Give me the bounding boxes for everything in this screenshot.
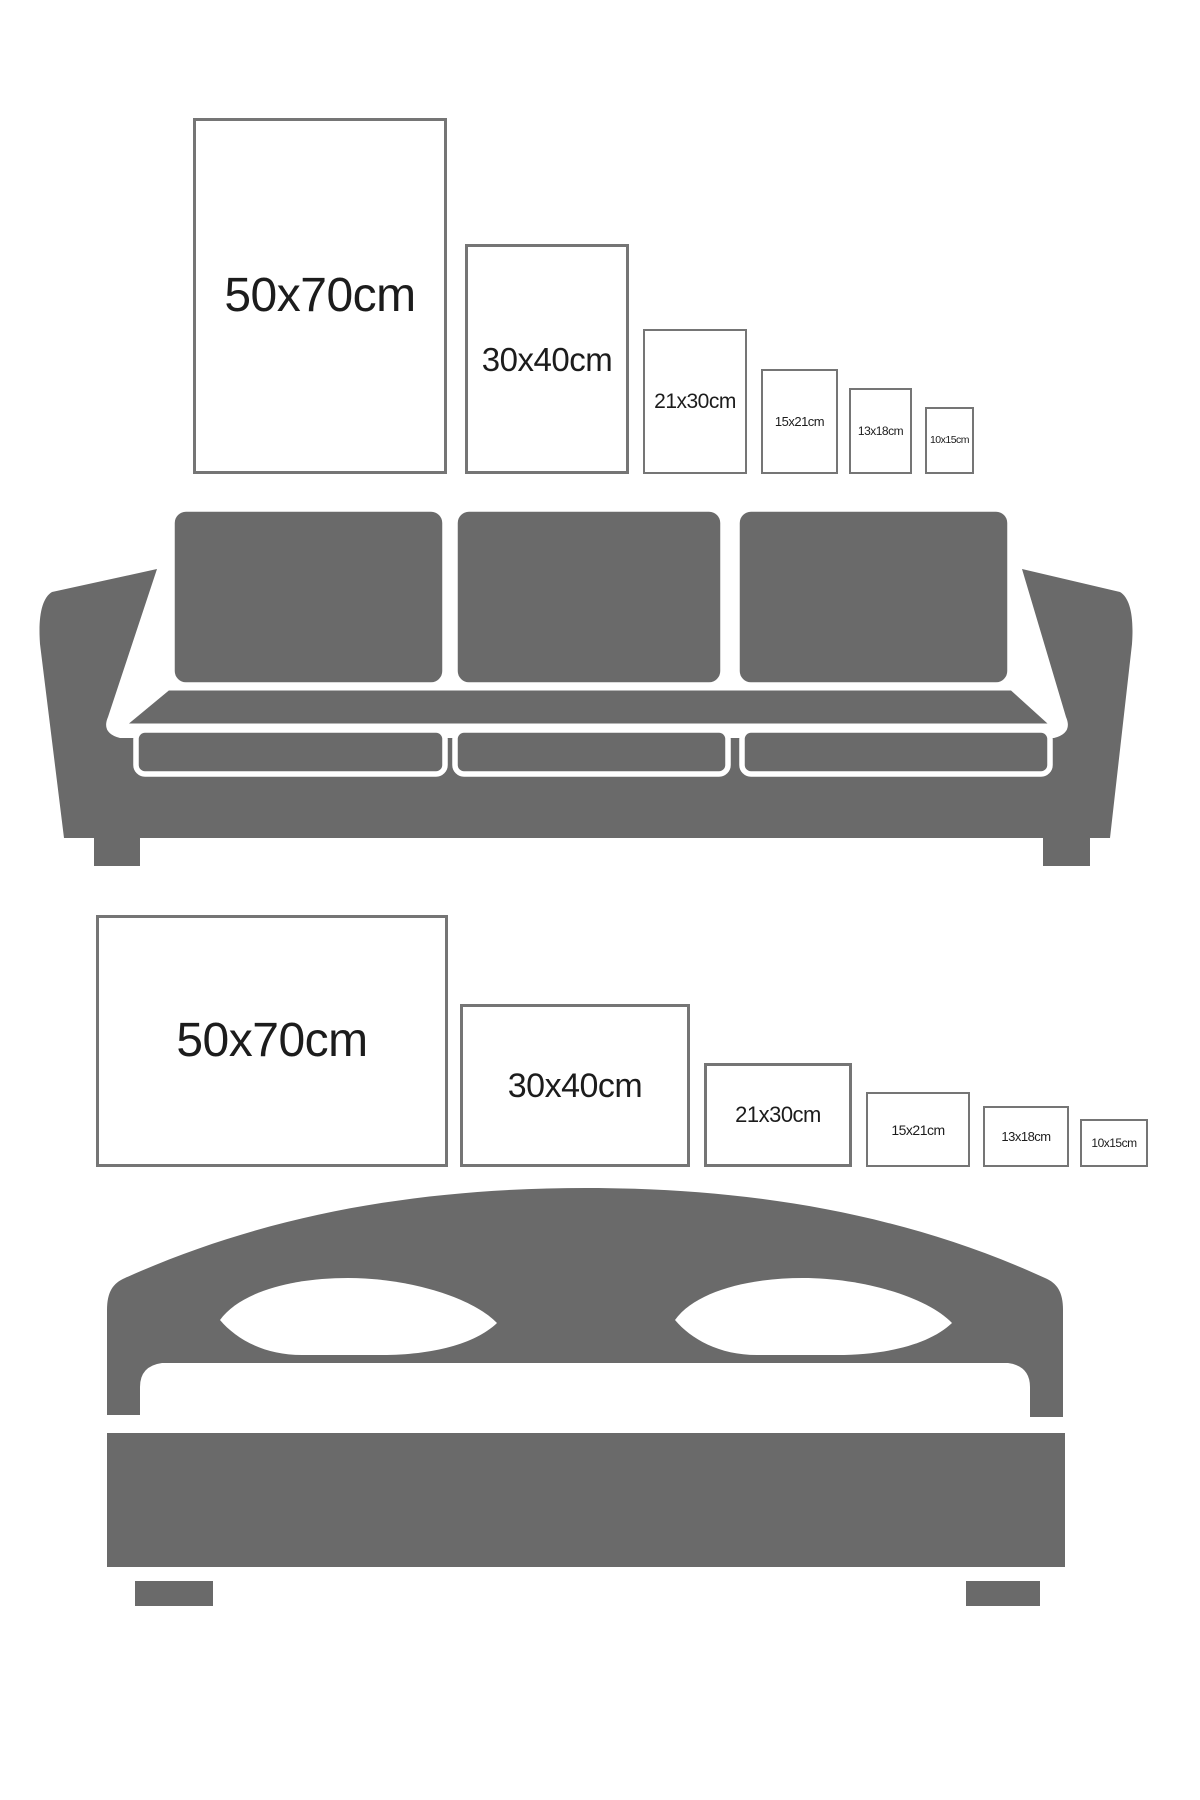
frame-landscape-30x40: 30x40cm [460, 1004, 690, 1167]
frame-landscape-10x15: 10x15cm [1080, 1119, 1148, 1167]
frame-size-label: 13x18cm [1001, 1130, 1050, 1143]
frame-landscape-13x18: 13x18cm [983, 1106, 1069, 1167]
frame-size-label: 15x21cm [775, 415, 824, 428]
sofa-back-cushion [172, 509, 445, 685]
bed-icon [0, 1180, 1200, 1640]
frame-landscape-50x70: 50x70cm [96, 915, 448, 1167]
frame-size-label: 30x40cm [508, 1069, 642, 1103]
sofa-foot [94, 838, 140, 866]
frame-portrait-15x21: 15x21cm [761, 369, 838, 474]
bed-foot [966, 1581, 1040, 1606]
bed-foot [135, 1581, 213, 1606]
sofa-back-cushion [455, 509, 723, 685]
frame-size-label: 15x21cm [891, 1123, 944, 1137]
frame-size-label: 21x30cm [654, 391, 736, 412]
frame-portrait-13x18: 13x18cm [849, 388, 912, 474]
frame-portrait-21x30: 21x30cm [643, 329, 747, 474]
sofa-icon [0, 480, 1200, 880]
frame-size-label: 21x30cm [735, 1104, 821, 1126]
frame-size-label: 50x70cm [176, 1017, 367, 1065]
sofa-foot [1043, 838, 1090, 866]
frame-size-label: 50x70cm [224, 272, 415, 320]
sofa-seat-cushion [742, 730, 1050, 774]
frame-size-label: 10x15cm [1091, 1137, 1136, 1149]
frame-size-label: 30x40cm [482, 343, 612, 376]
frame-portrait-30x40: 30x40cm [465, 244, 629, 474]
size-guide-canvas: 50x70cm 30x40cm 21x30cm 15x21cm 13x18cm … [0, 0, 1200, 1800]
sofa-back-cushion [737, 509, 1010, 685]
bed-base [107, 1433, 1065, 1567]
sofa-seat-cushion [455, 730, 728, 774]
sofa-seat-deck [122, 688, 1054, 726]
sofa-seat-cushion [136, 730, 445, 774]
frame-portrait-50x70: 50x70cm [193, 118, 447, 474]
frame-size-label: 13x18cm [858, 425, 903, 437]
frame-landscape-21x30: 21x30cm [704, 1063, 852, 1167]
frame-size-label: 10x15cm [930, 435, 969, 446]
frame-landscape-15x21: 15x21cm [866, 1092, 970, 1167]
frame-portrait-10x15: 10x15cm [925, 407, 974, 474]
